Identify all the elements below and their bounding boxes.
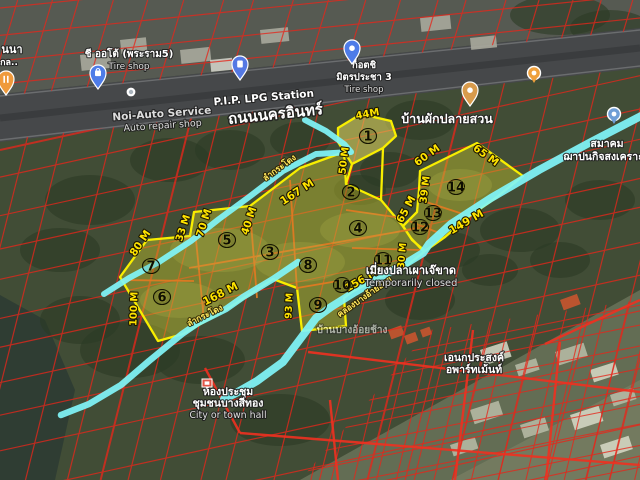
- poi-sublabel[interactable]: Tire shop: [107, 62, 150, 72]
- poi-name[interactable]: เมี่ยงปลาเผาเจ๊ขาด: [366, 262, 456, 277]
- plot-number: 5: [222, 234, 231, 249]
- plot-number: 12: [411, 221, 429, 236]
- poi-label-partial-label-nna[interactable]: นนา: [1, 43, 22, 56]
- plot-number-badge: 10: [333, 278, 351, 294]
- poi-name[interactable]: ชี ออโต้ (พระราม5): [85, 47, 174, 60]
- pin-glyph: [7, 76, 9, 83]
- plot-number: 1: [363, 130, 372, 145]
- map-viewport[interactable]: ลำกระโดงลำกระโดงคลองบางอ้ายอ้อย44M50 M60…: [0, 0, 640, 480]
- plot-number-badge: 14: [447, 180, 465, 196]
- plot-number: 3: [265, 246, 274, 261]
- poi-sublabel[interactable]: Temporarily closed: [364, 278, 458, 289]
- pin-glyph: [237, 61, 243, 68]
- poi-name[interactable]: กล..: [0, 58, 18, 68]
- plot-number: 6: [157, 291, 166, 306]
- poi-name[interactable]: ชุมชนบางสีทอง: [193, 397, 264, 411]
- plot-number: 10: [333, 279, 351, 294]
- measurement-label: 100 M: [128, 292, 140, 327]
- tree-canopy: [45, 175, 135, 225]
- poi-name[interactable]: สมาคม: [590, 138, 623, 150]
- plot-number: 2: [346, 186, 355, 201]
- pin-glyph: [95, 71, 101, 77]
- pin-glyph: [349, 45, 355, 51]
- poi-label-partial-label-kl[interactable]: กล..: [0, 58, 18, 68]
- pin-glyph: [467, 87, 473, 93]
- pin-glyph: [532, 71, 537, 76]
- poi-name[interactable]: บ้านบางอ้อยช้าง: [317, 324, 388, 336]
- pin-glyph: [612, 112, 617, 117]
- plot-number: 14: [447, 181, 465, 196]
- plot-number: 13: [424, 207, 442, 222]
- pin-dot: [129, 90, 133, 94]
- poi-name[interactable]: ฌาปนกิจสงเคราะห์: [563, 150, 640, 163]
- poi-label-ban-phak-plai-suan[interactable]: บ้านผักปลายสวน: [401, 111, 493, 126]
- pin-glyph: [3, 76, 5, 83]
- poi-label-anek-prasong-apartment[interactable]: เอนกประสงค์อพาร์ทเม้นท์: [444, 351, 504, 376]
- plot-number: 9: [313, 299, 322, 314]
- tree-canopy: [462, 254, 518, 286]
- plot-divider-line: [122, 280, 194, 281]
- tree-canopy: [565, 180, 635, 220]
- tree-canopy: [40, 296, 120, 344]
- poi-label-ban-bang-oi-chang[interactable]: บ้านบางอ้อยช้าง: [317, 324, 388, 336]
- poi-name[interactable]: เอนกประสงค์: [444, 351, 504, 364]
- poi-name[interactable]: อพาร์ทเม้นท์: [446, 363, 502, 376]
- plot-number: 8: [303, 259, 312, 274]
- poi-name[interactable]: บ้านผักปลายสวน: [401, 111, 493, 126]
- dot-pin[interactable]: [127, 88, 136, 97]
- poi-label-miang-pla-pao[interactable]: เมี่ยงปลาเผาเจ๊ขาดTemporarily closed: [364, 262, 458, 289]
- measurement-label: 93 M: [283, 293, 295, 320]
- plot-number-badge: 12: [411, 220, 429, 236]
- poi-sublabel[interactable]: City or town hall: [189, 410, 266, 421]
- plot-number: 7: [146, 260, 155, 275]
- pin-glyph: [205, 381, 210, 384]
- store-box-pin[interactable]: [202, 379, 212, 387]
- plot-number-badge: 13: [424, 206, 442, 222]
- tree-canopy: [195, 130, 265, 170]
- poi-name[interactable]: มิตรประชา 3: [336, 71, 391, 83]
- map-canvas[interactable]: ลำกระโดงลำกระโดงคลองบางอ้ายอ้อย44M50 M60…: [0, 0, 640, 480]
- plot-number: 4: [353, 222, 362, 237]
- poi-sublabel[interactable]: Tire shop: [343, 85, 383, 95]
- tree-canopy: [20, 228, 100, 272]
- poi-name[interactable]: นนา: [1, 43, 22, 56]
